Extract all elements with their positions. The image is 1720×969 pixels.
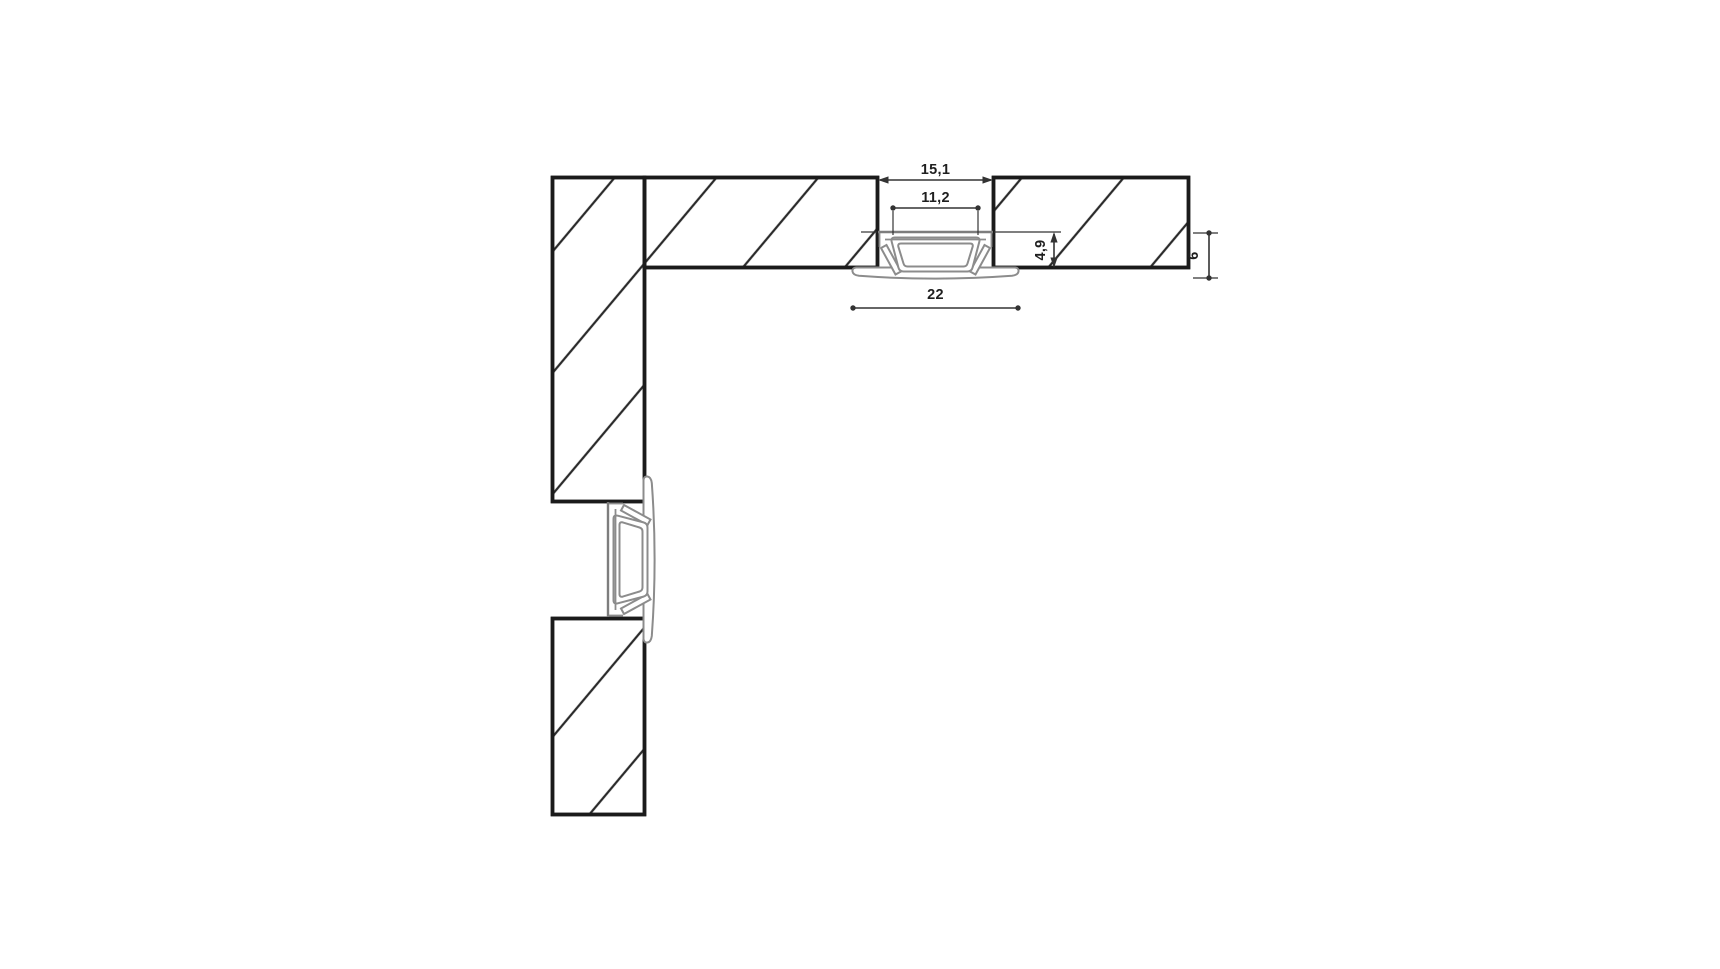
dim-flange-width: 22	[850, 287, 1020, 311]
dim-label-profile-height: 6	[1186, 251, 1202, 259]
dim-dot-icon	[1206, 275, 1211, 280]
panel-top-left	[645, 178, 878, 268]
panel-top-right	[994, 178, 1189, 268]
dim-dot-icon	[1015, 305, 1020, 310]
dim-dot-icon	[975, 205, 980, 210]
dim-label-flange-width: 22	[927, 287, 944, 303]
dim-inner-width: 11,2	[890, 190, 980, 235]
dim-label-groove-width: 15,1	[921, 162, 950, 178]
panel-wall-corner	[553, 178, 645, 502]
dim-groove-width: 15,1	[878, 162, 993, 184]
panel-bottom	[553, 619, 645, 815]
dim-dot-icon	[850, 305, 855, 310]
dim-label-recess-depth: 4,9	[1033, 239, 1049, 260]
dim-dot-icon	[890, 205, 895, 210]
arrow-left-icon	[878, 176, 889, 183]
drawing-canvas: 15,1 11,2 4,9	[0, 0, 1720, 969]
dim-dot-icon	[1206, 230, 1211, 235]
dim-label-inner-width: 11,2	[921, 190, 950, 206]
arrow-right-icon	[983, 176, 994, 183]
technical-drawing: 15,1 11,2 4,9	[0, 0, 1720, 969]
dim-profile-height: 6	[1186, 230, 1218, 280]
